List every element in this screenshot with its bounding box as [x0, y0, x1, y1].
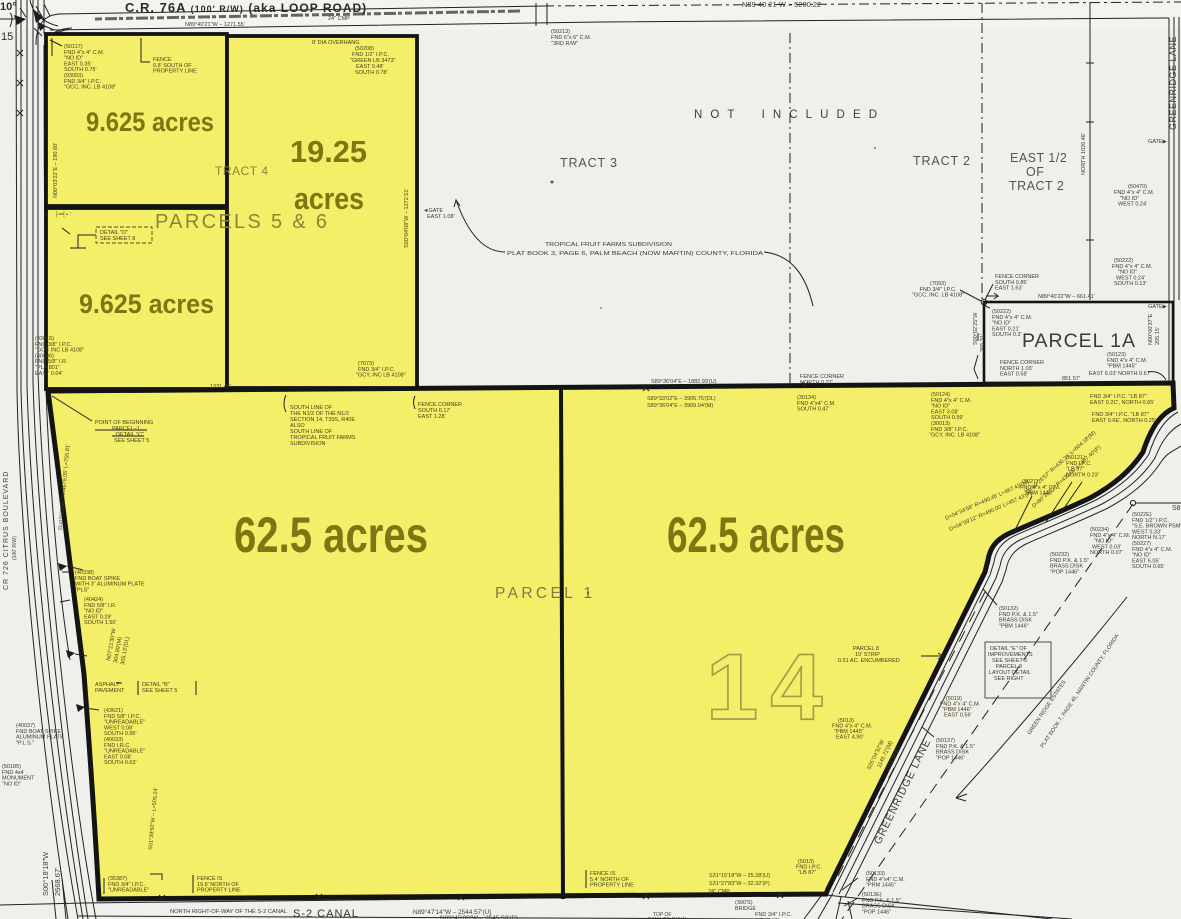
- svg-text:TRACT 3: TRACT 3: [560, 156, 617, 170]
- svg-text:851.57': 851.57': [1062, 376, 1080, 382]
- svg-text:9.625 acres: 9.625 acres: [86, 107, 214, 137]
- svg-text:2668.67': 2668.67': [53, 867, 62, 896]
- svg-text:14: 14: [706, 634, 835, 739]
- svg-text:62.5 acres: 62.5 acres: [234, 507, 428, 563]
- svg-text:TROPICAL FRUIT FARMS SUBDIVISI: TROPICAL FRUIT FARMS SUBDIVISION: [545, 242, 672, 248]
- svg-text:├=╡•⋮: ├=╡•⋮: [55, 211, 73, 218]
- svg-text:S00°18'18"W: S00°18'18"W: [41, 851, 50, 896]
- svg-text:FND 3/4" I.P.C. "LB 87"EAST 0.: FND 3/4" I.P.C. "LB 87"EAST 0.6E', NORTH…: [1092, 412, 1156, 424]
- svg-text:N00°03'22"E – 190.60': N00°03'22"E – 190.60': [53, 143, 59, 198]
- svg-text:CR 726 CITRUS BOULEVARD: CR 726 CITRUS BOULEVARD: [3, 471, 10, 590]
- svg-text:TRACT 4: TRACT 4: [215, 164, 268, 178]
- svg-text:1331.46': 1331.46': [210, 384, 231, 390]
- svg-text:N89°45'09"W – 2545.50'(P): N89°45'09"W – 2545.50'(P): [440, 914, 518, 919]
- svg-text:S8: S8: [1172, 505, 1181, 512]
- svg-text:24" CMP: 24" CMP: [708, 889, 730, 895]
- svg-text:GREENRIDGE LANE: GREENRIDGE LANE: [1168, 36, 1178, 130]
- svg-text:S89°33'02"E – 3905.75'(DL)S89°: S89°33'02"E – 3905.75'(DL)S89°36'04"E – …: [647, 396, 716, 409]
- svg-text:C.R. 76A (100' R/W) (aka LOOP: C.R. 76A (100' R/W) (aka LOOP ROAD): [125, 0, 367, 15]
- svg-text:NORTH 1026.46': NORTH 1026.46': [1081, 133, 1087, 175]
- svg-text:N89 40 21 W – 5200.22: N89 40 21 W – 5200.22: [742, 0, 821, 9]
- svg-text:PARCEL 1A: PARCEL 1A: [1022, 330, 1135, 352]
- svg-text:15: 15: [1, 31, 13, 43]
- svg-text:205.15': 205.15': [1155, 327, 1161, 345]
- svg-text:(50470): (50470): [1128, 184, 1147, 190]
- svg-text:N89°40'21"W – 1271.55': N89°40'21"W – 1271.55': [185, 22, 245, 28]
- svg-text:PARCEL 1: PARCEL 1: [495, 585, 592, 602]
- svg-text:10°: 10°: [0, 1, 17, 13]
- svg-text:EAST 6.03' NORTH 0.67': EAST 6.03' NORTH 0.67': [1089, 371, 1151, 377]
- svg-text:24" CMP: 24" CMP: [328, 16, 350, 22]
- svg-text:GATE▶: GATE▶: [1148, 304, 1168, 310]
- svg-text:N89°40'22"W – 661.41': N89°40'22"W – 661.41': [1038, 294, 1095, 300]
- svg-text:(100' R/W): (100' R/W): [12, 536, 18, 560]
- svg-text:N00°00'37"E: N00°00'37"E: [1148, 313, 1154, 345]
- svg-text:S00°04'08"W – 1272.51': S00°04'08"W – 1272.51': [404, 189, 410, 248]
- svg-text:TRACT 2: TRACT 2: [913, 154, 970, 168]
- svg-text:GATE▶: GATE▶: [1148, 139, 1168, 145]
- svg-text:265.31': 265.31': [980, 334, 986, 352]
- svg-text:FND 3/4" I.P.C. "LB 87"EAST 0.: FND 3/4" I.P.C. "LB 87"EAST 0.2C', NORTH…: [1090, 394, 1154, 406]
- svg-text:S89°36'04"E – 1882.99'(U): S89°36'04"E – 1882.99'(U): [651, 379, 717, 385]
- svg-text:9.625 acres: 9.625 acres: [79, 289, 214, 319]
- svg-text:FND 3/4" I.P.C."LB 4108": FND 3/4" I.P.C."LB 4108": [755, 912, 792, 919]
- svg-text:62.5 acres: 62.5 acres: [667, 507, 845, 563]
- svg-text:19.25: 19.25: [290, 134, 367, 169]
- svg-text:PLAT BOOK 3, PAGE 6, PALM BEAC: PLAT BOOK 3, PAGE 6, PALM BEACH (NOW MAR…: [507, 251, 763, 257]
- svg-text:PARCELS 5 & 6: PARCELS 5 & 6: [155, 211, 327, 233]
- svg-text:NORTH RIGHT-OF-WAY OF THE S-2: NORTH RIGHT-OF-WAY OF THE S-2 CANAL: [170, 909, 287, 915]
- svg-text:S-2 CANAL: S-2 CANAL: [293, 908, 359, 919]
